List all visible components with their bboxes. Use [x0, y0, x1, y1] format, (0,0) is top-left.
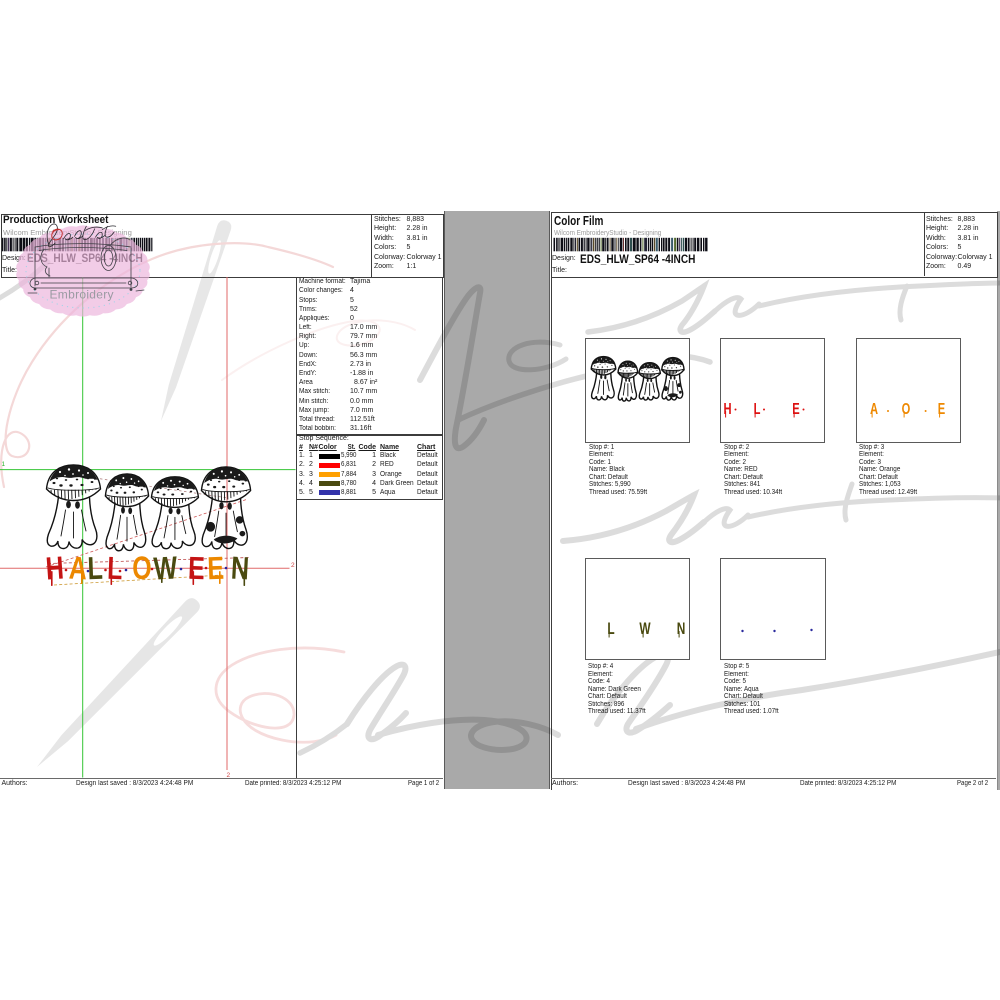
svg-text:H: H [723, 400, 731, 417]
svg-text:Embroidery: Embroidery [50, 288, 114, 302]
svg-text:1: 1 [2, 461, 6, 468]
svg-text:A: A [68, 551, 88, 588]
svg-text:L: L [107, 551, 123, 587]
svg-text:E: E [792, 400, 799, 417]
svg-text:N: N [230, 551, 250, 588]
svg-text:2: 2 [291, 562, 295, 569]
svg-text:2: 2 [227, 772, 231, 779]
svg-text:W: W [639, 620, 651, 638]
svg-text:O: O [132, 551, 151, 587]
svg-text:E: E [207, 551, 225, 587]
svg-text:N: N [677, 620, 686, 638]
svg-text:W: W [153, 551, 179, 588]
svg-text:L: L [607, 620, 614, 638]
svg-text:O: O [902, 400, 911, 417]
svg-text:H: H [45, 551, 65, 588]
svg-text:A: A [870, 400, 878, 417]
svg-text:E: E [938, 400, 945, 417]
svg-text:L: L [87, 551, 103, 587]
svg-text:E: E [187, 551, 205, 587]
